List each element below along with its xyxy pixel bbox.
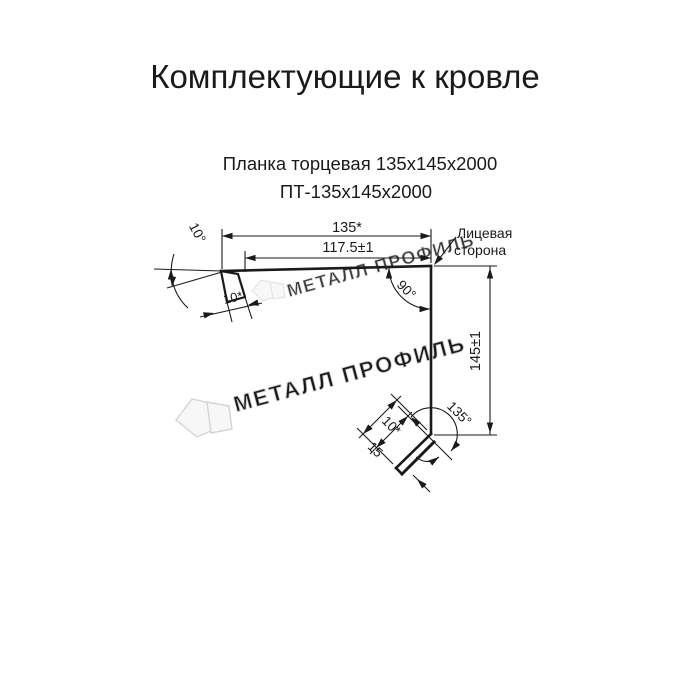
drawing-page: МЕТАЛЛ ПРОФИЛЬ МЕТАЛЛ ПРОФИЛЬ Комплектую…: [0, 0, 700, 700]
face-side-label-line1: Лицевая: [457, 225, 512, 241]
product-code: ПТ-135х145х2000: [280, 181, 432, 202]
dim-bottom-hem: 10*: [379, 413, 404, 438]
dim-top-angle: 10°: [186, 220, 209, 245]
metal-profile-logo-icon: [252, 280, 285, 301]
dim-top-hem: 10*: [222, 288, 244, 307]
extension-line: [438, 446, 452, 460]
technical-drawing: МЕТАЛЛ ПРОФИЛЬ МЕТАЛЛ ПРОФИЛЬ Комплектую…: [0, 0, 700, 700]
dim-top-working-width: 117.5±1: [322, 240, 373, 256]
dim-side-height: 145±1: [468, 331, 484, 371]
product-name: Планка торцевая 135х145х2000: [223, 153, 498, 174]
ref-horizontal-line: [154, 269, 222, 271]
face-side-label-line2: сторона: [454, 242, 506, 258]
watermark-band-lower: МЕТАЛЛ ПРОФИЛЬ: [176, 331, 468, 437]
metal-profile-logo-icon: [176, 399, 232, 437]
page-title: Комплектующие к кровле: [150, 58, 540, 95]
dim-bottom-angle: 135°: [444, 398, 474, 428]
dim-top-width: 135*: [332, 220, 362, 236]
watermark-text: МЕТАЛЛ ПРОФИЛЬ: [285, 230, 477, 301]
watermark-text: МЕТАЛЛ ПРОФИЛЬ: [231, 331, 469, 417]
extension-line: [245, 297, 252, 319]
dim-corner-angle: 90°: [394, 277, 419, 302]
ref-sloped-line: [167, 272, 222, 288]
